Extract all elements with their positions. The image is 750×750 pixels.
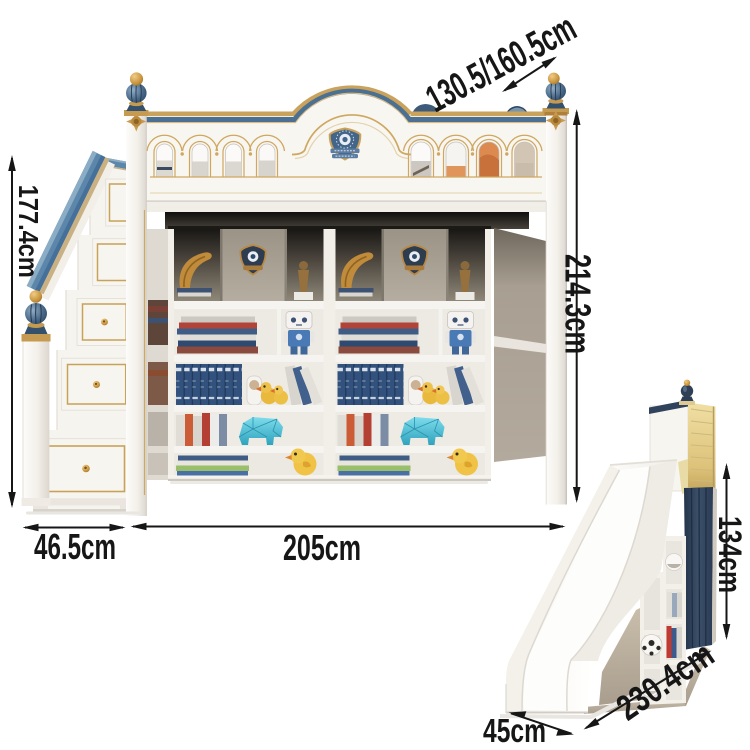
- svg-text:45cm: 45cm: [483, 712, 546, 749]
- svg-text:46.5cm: 46.5cm: [34, 526, 116, 567]
- svg-text:214.3cm: 214.3cm: [558, 254, 599, 354]
- svg-text:177.4cm: 177.4cm: [13, 185, 44, 278]
- svg-text:205cm: 205cm: [283, 527, 361, 568]
- svg-text:134cm: 134cm: [712, 516, 748, 593]
